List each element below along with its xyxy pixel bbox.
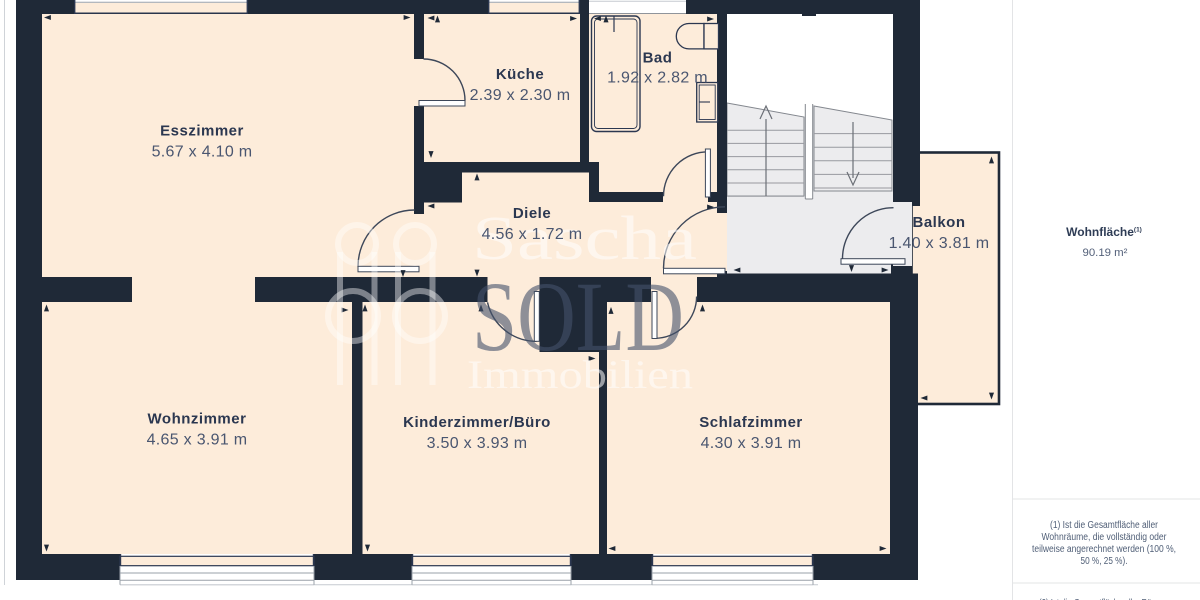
svg-text:90.19 m²: 90.19 m² bbox=[1083, 247, 1128, 259]
svg-text:Wohnfläche(1): Wohnfläche(1) bbox=[1066, 225, 1142, 239]
svg-text:1.40 x 3.81 m: 1.40 x 3.81 m bbox=[889, 235, 990, 252]
svg-text:1.92 x 2.82 m: 1.92 x 2.82 m bbox=[607, 69, 708, 86]
svg-text:Kinderzimmer/Büro: Kinderzimmer/Büro bbox=[403, 414, 551, 431]
svg-text:5.67 x 4.10 m: 5.67 x 4.10 m bbox=[152, 143, 253, 160]
svg-text:Küche: Küche bbox=[496, 66, 544, 83]
svg-text:Balkon: Balkon bbox=[912, 214, 965, 231]
svg-text:Schlafzimmer: Schlafzimmer bbox=[699, 414, 803, 431]
svg-text:4.30 x 3.91 m: 4.30 x 3.91 m bbox=[701, 435, 802, 452]
svg-text:50 %, 25 %).: 50 %, 25 %). bbox=[1081, 556, 1128, 567]
svg-text:Esszimmer: Esszimmer bbox=[160, 122, 244, 139]
svg-text:4.56 x 1.72 m: 4.56 x 1.72 m bbox=[482, 226, 583, 243]
svg-text:Bad: Bad bbox=[643, 49, 673, 66]
svg-text:Diele: Diele bbox=[513, 205, 551, 222]
svg-text:4.65 x 3.91 m: 4.65 x 3.91 m bbox=[147, 432, 248, 449]
svg-text:(1) Ist die Gesamtfläche aller: (1) Ist die Gesamtfläche aller bbox=[1050, 520, 1159, 531]
svg-text:3.50 x 3.93 m: 3.50 x 3.93 m bbox=[427, 435, 528, 452]
svg-text:2.39 x 2.30 m: 2.39 x 2.30 m bbox=[470, 87, 571, 104]
svg-text:Wohnzimmer: Wohnzimmer bbox=[148, 411, 247, 428]
svg-text:teilweise angerechnet werden (: teilweise angerechnet werden (100 %, bbox=[1032, 544, 1176, 555]
svg-text:Wohnräume, die vollständig ode: Wohnräume, die vollständig oder bbox=[1042, 532, 1168, 543]
svg-text:Immobilien: Immobilien bbox=[467, 352, 693, 397]
